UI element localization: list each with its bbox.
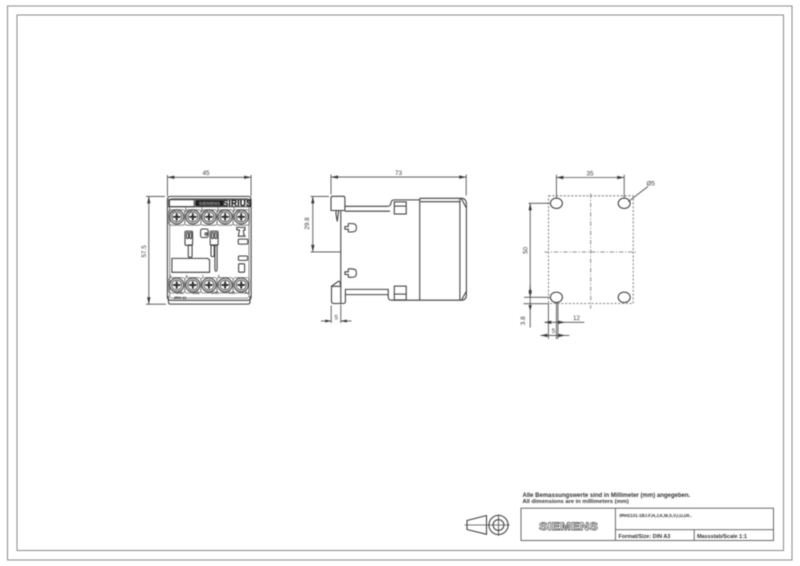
svg-text:3.8: 3.8 (520, 316, 527, 325)
svg-text:14E: 14E (176, 290, 183, 295)
svg-text:All dimensions are in millimet: All dimensions are in millimeters (mm) (523, 499, 629, 505)
svg-text:44E: 44E (228, 290, 235, 295)
svg-text:34E: 34E (212, 290, 219, 295)
svg-text:57.5: 57.5 (141, 245, 148, 258)
svg-text:35: 35 (586, 170, 594, 177)
svg-text:50: 50 (523, 246, 530, 254)
svg-text:SIEMENS: SIEMENS (539, 520, 598, 533)
svg-text:73: 73 (395, 170, 403, 177)
svg-text:Massstab/Scale 1:1: Massstab/Scale 1:1 (697, 534, 747, 540)
svg-text:3RH-21: 3RH-21 (174, 296, 186, 300)
svg-text:5: 5 (552, 328, 556, 335)
svg-text:45: 45 (202, 170, 210, 177)
svg-text:SIRIUS: SIRIUS (223, 199, 252, 208)
svg-text:29.8: 29.8 (304, 217, 311, 230)
svg-text:5: 5 (335, 314, 339, 321)
svg-text:12: 12 (573, 315, 581, 322)
svg-text:A2: A2 (245, 290, 251, 295)
svg-text:Format/Size: DIN A3: Format/Size: DIN A3 (619, 534, 671, 540)
svg-text:22E: 22E (193, 290, 200, 295)
svg-text:SIEMENS: SIEMENS (199, 201, 220, 206)
svg-text:3RH2131-1BJ.F,H,J,K,M,S,V,I,U,: 3RH2131-1BJ.F,H,J,K,M,S,V,I,U,U0.. (619, 513, 692, 518)
